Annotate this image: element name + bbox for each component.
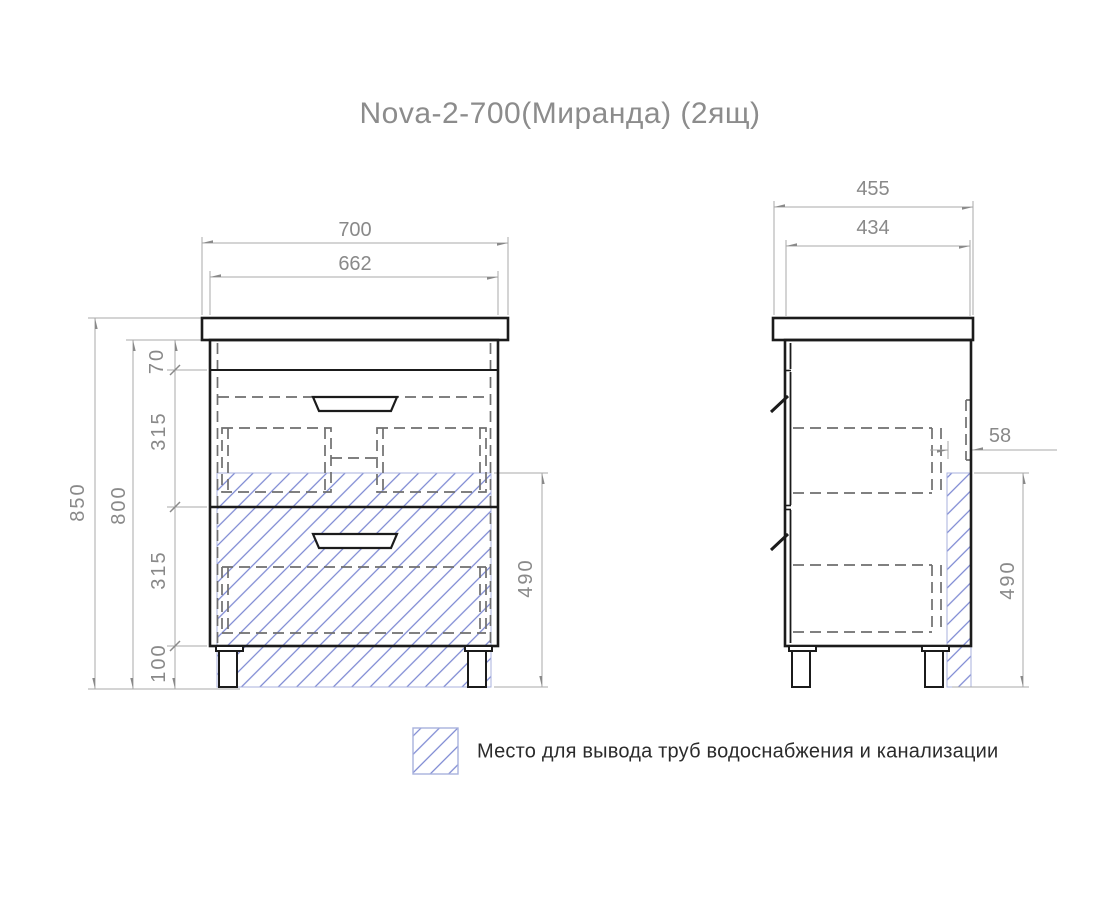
dim-front-height-cabinet: 800 [109,485,129,524]
page-title: Nova-2-700(Миранда) (2ящ) [359,97,760,131]
legend-hatch-swatch [413,728,458,774]
dim-front-seg-drawer2: 315 [149,550,169,589]
technical-drawing-page: Nova-2-700(Миранда) (2ящ) 700 662 850 80… [0,0,1100,900]
legend-label: Место для вывода труб водоснабжения и ка… [477,741,998,764]
dim-side-depth-countertop: 455 [856,179,889,199]
dim-front-seg-legs: 100 [149,643,169,682]
dim-front-width-countertop: 700 [338,220,371,240]
dim-front-pipe-zone-height: 490 [516,558,536,597]
dim-front-height-total: 850 [68,482,88,521]
dim-side-depth-cabinet: 434 [856,218,889,238]
side-legs [789,646,949,687]
dim-side-pipe-zone-depth: 58 [989,426,1011,446]
pipe-zone-hatch [217,473,971,687]
dim-side-pipe-zone-height: 490 [998,560,1018,599]
drawer2-handle [313,534,397,548]
dim-front-seg-top-rail: 70 [147,348,167,374]
drawer1-handle [313,397,397,411]
dim-front-seg-drawer1: 315 [149,411,169,450]
dim-front-width-cabinet: 662 [338,254,371,274]
